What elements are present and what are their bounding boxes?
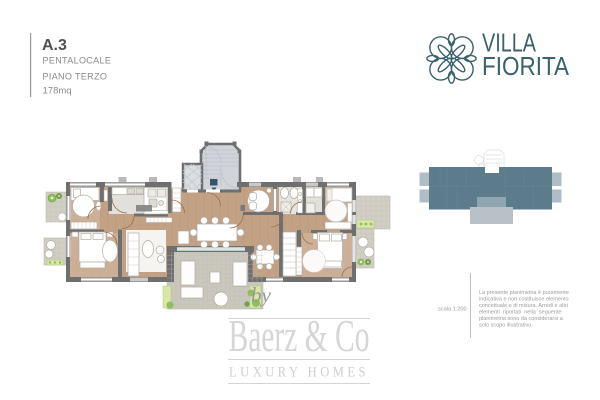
svg-text:indicativa e non costituisce e: indicativa e non costituisce elemento (479, 297, 569, 303)
svg-text:PENTALOCALE: PENTALOCALE (43, 56, 112, 66)
svg-text:LUXURY HOMES: LUXURY HOMES (229, 365, 369, 381)
svg-text:concettuale e di misura. Arred: concettuale e di misura. Arredi e altri (479, 303, 568, 309)
svg-text:scala 1:200: scala 1:200 (438, 307, 467, 313)
svg-text:solo scopo illustrativo.: solo scopo illustrativo. (479, 323, 533, 329)
svg-text:FIORITA: FIORITA (482, 51, 570, 81)
svg-text:PIANO TERZO: PIANO TERZO (43, 72, 108, 82)
svg-text:La presente planimetria è pura: La presente planimetria è puramente (479, 290, 569, 296)
svg-text:Baerz & Co: Baerz & Co (229, 311, 370, 361)
svg-text:elementi riportati nella se: elementi riportati nella seguente (479, 310, 562, 316)
svg-text:planimetria sono da considerar: planimetria sono da considerarsi a (479, 316, 564, 322)
svg-text:by: by (251, 283, 272, 307)
svg-text:178mq: 178mq (43, 86, 72, 97)
svg-text:A.3: A.3 (42, 37, 67, 54)
